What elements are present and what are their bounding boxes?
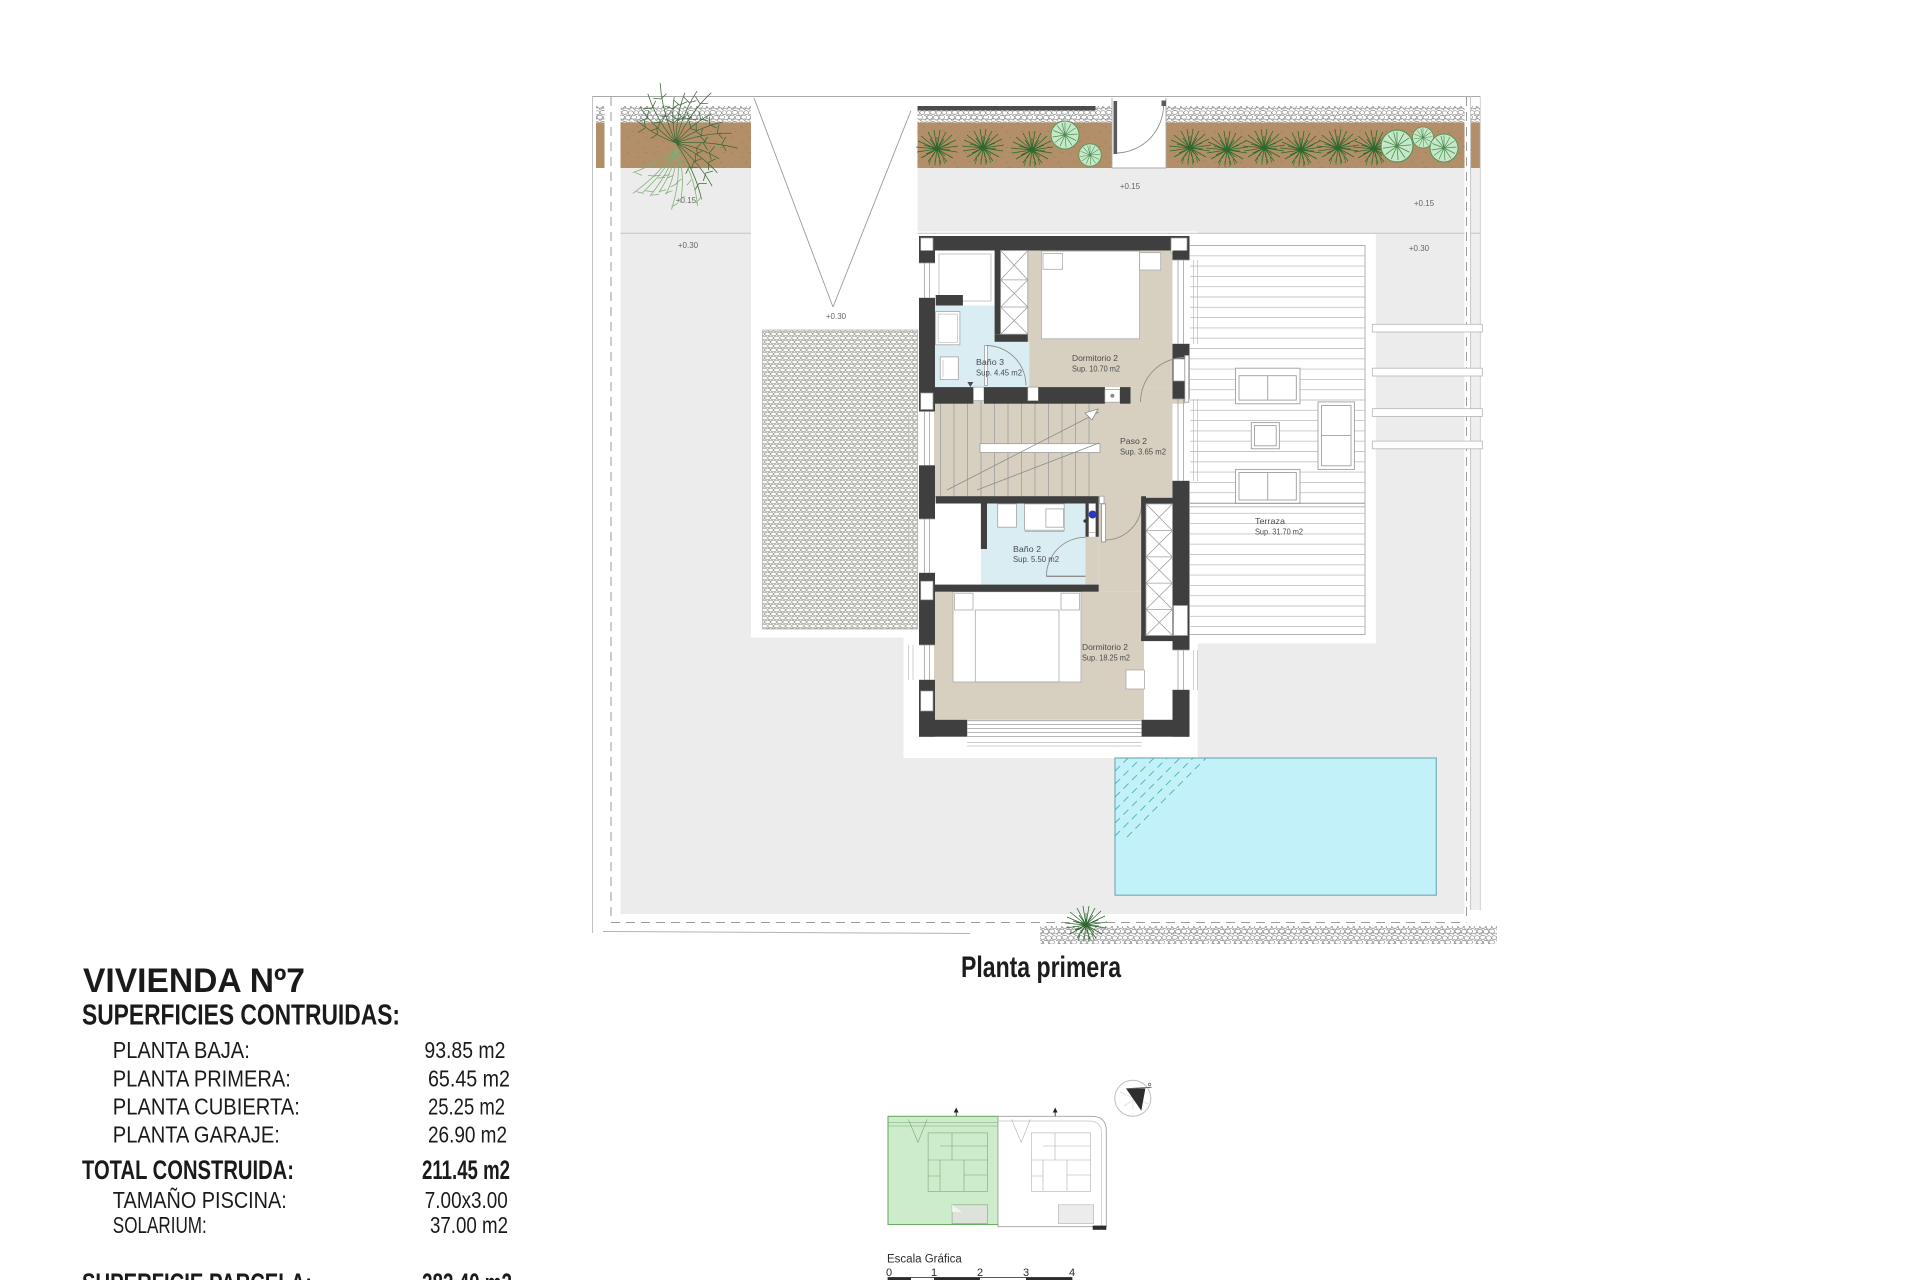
- svg-text:Sup. 5.50 m2: Sup. 5.50 m2: [1013, 554, 1059, 564]
- svg-text:Sup. 31.70 m2: Sup. 31.70 m2: [1255, 527, 1303, 537]
- svg-text:PLANTA BAJA:: PLANTA BAJA:: [113, 1037, 250, 1063]
- svg-text:VIVIENDA Nº7: VIVIENDA Nº7: [83, 962, 305, 1000]
- svg-text:7.00x3.00: 7.00x3.00: [425, 1187, 508, 1213]
- svg-text:SUPERFICIE PARCELA:: SUPERFICIE PARCELA:: [82, 1268, 312, 1280]
- svg-text:SUPERFICIES CONTRUIDAS:: SUPERFICIES CONTRUIDAS:: [82, 1000, 400, 1032]
- svg-text:26.90 m2: 26.90 m2: [428, 1122, 507, 1148]
- svg-text:282.40 m2: 282.40 m2: [422, 1268, 512, 1280]
- svg-text:211.45 m2: 211.45 m2: [422, 1155, 510, 1185]
- svg-text:93.85 m2: 93.85 m2: [424, 1037, 505, 1063]
- svg-text:Dormitorio 2: Dormitorio 2: [1072, 353, 1118, 363]
- svg-text:+0.30: +0.30: [1409, 244, 1430, 253]
- svg-text:PLANTA GARAJE:: PLANTA GARAJE:: [113, 1122, 280, 1148]
- svg-text:+0.30: +0.30: [826, 312, 847, 321]
- svg-text:Baño 2: Baño 2: [1013, 544, 1041, 554]
- svg-text:37.00 m2: 37.00 m2: [430, 1212, 508, 1238]
- svg-text:25.25 m2: 25.25 m2: [428, 1093, 505, 1119]
- svg-text:+0.15: +0.15: [1120, 182, 1141, 191]
- svg-text:Terraza: Terraza: [1255, 516, 1285, 526]
- svg-text:Escala Gráfica: Escala Gráfica: [887, 1254, 962, 1266]
- svg-text:+0.30: +0.30: [678, 241, 699, 250]
- svg-text:65.45 m2: 65.45 m2: [428, 1066, 510, 1092]
- svg-text:SOLARIUM:: SOLARIUM:: [113, 1212, 207, 1238]
- svg-text:PLANTA CUBIERTA:: PLANTA CUBIERTA:: [113, 1093, 300, 1119]
- svg-text:Sup. 18.25 m2: Sup. 18.25 m2: [1082, 653, 1130, 663]
- svg-text:TOTAL CONSTRUIDA:: TOTAL CONSTRUIDA:: [82, 1155, 294, 1185]
- svg-text:Sup. 3.65 m2: Sup. 3.65 m2: [1120, 447, 1166, 457]
- svg-text:TAMAÑO PISCINA:: TAMAÑO PISCINA:: [113, 1187, 287, 1213]
- svg-text:+0.15: +0.15: [1414, 199, 1435, 208]
- svg-text:Dormitorio 2: Dormitorio 2: [1082, 642, 1128, 652]
- svg-text:Sup. 10.70 m2: Sup. 10.70 m2: [1072, 364, 1120, 374]
- svg-text:Baño 3: Baño 3: [976, 357, 1004, 367]
- svg-text:PLANTA PRIMERA:: PLANTA PRIMERA:: [113, 1066, 291, 1092]
- svg-text:Planta primera: Planta primera: [961, 951, 1121, 984]
- svg-text:Paso 2: Paso 2: [1120, 436, 1147, 446]
- svg-text:Sup. 4.45 m2: Sup. 4.45 m2: [976, 368, 1022, 378]
